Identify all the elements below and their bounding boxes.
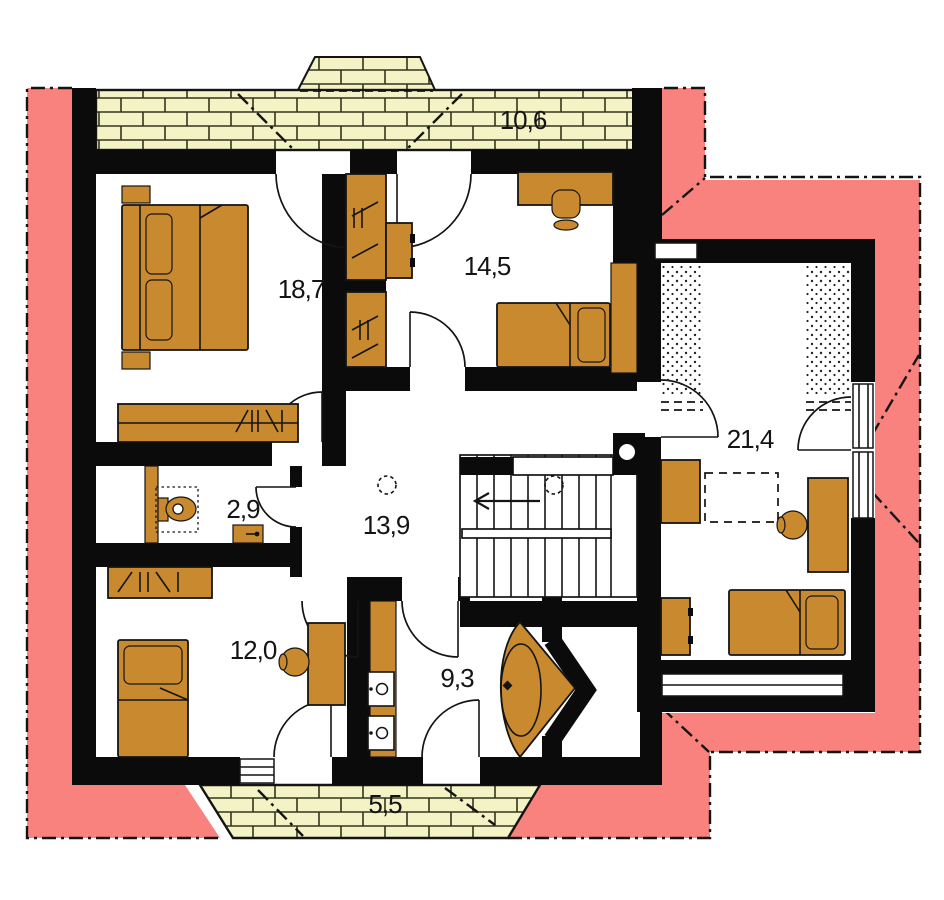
bed-lower <box>118 640 188 757</box>
stool-icon <box>552 190 580 218</box>
balcony-door-east-glazing <box>853 384 873 448</box>
washbasin-icon <box>368 672 394 706</box>
label-bedroom-upper: 14,5 <box>464 251 511 281</box>
window-bedroom-right-north <box>655 243 697 259</box>
wall-south-3 <box>480 757 662 785</box>
wall-south-2 <box>332 757 423 785</box>
staircase <box>460 433 645 597</box>
wall-master-south <box>72 442 272 466</box>
roof-left-band <box>27 88 72 838</box>
wall-master-east <box>322 174 346 466</box>
wall-upper-south-a <box>346 367 410 391</box>
wardrobe-divider-cap <box>346 280 386 292</box>
kneewall-zone-right <box>806 266 851 395</box>
bed-master <box>122 186 248 369</box>
floor-plan: 10,6 18,7 14,5 21,4 2,9 13,9 12,0 9,3 5,… <box>0 0 944 900</box>
wardrobe-right-b <box>661 598 693 655</box>
wardrobe-master <box>118 404 298 442</box>
roof-bottom-left <box>72 785 220 838</box>
stair-top-block <box>460 457 513 475</box>
chimney-flue-icon <box>619 444 635 460</box>
wall-wc-east-a <box>290 466 302 487</box>
wardrobe-right-a <box>661 460 700 523</box>
bed-right <box>729 590 845 655</box>
label-bedroom-master: 18,7 <box>278 274 325 304</box>
terrace-dormer-bump <box>298 57 435 90</box>
wall-west <box>72 88 96 785</box>
label-balcony: 5,5 <box>368 789 402 819</box>
label-wc: 2,9 <box>226 494 260 524</box>
window-south <box>240 759 274 783</box>
stair-landing-top <box>513 457 613 475</box>
terrace-deck <box>96 90 656 150</box>
label-bedroom-right: 21,4 <box>727 424 774 454</box>
label-terrace: 10,6 <box>500 105 547 135</box>
wall-north-1 <box>96 150 276 174</box>
wall-wc-south <box>72 543 302 567</box>
wall-bedroom-right-east-a <box>851 263 875 382</box>
label-bathroom: 9,3 <box>440 663 474 693</box>
wall-east-of-bedroom-upper <box>613 150 637 263</box>
wall-south-1 <box>72 757 240 785</box>
bed-upper <box>497 303 610 367</box>
washbasin-icon <box>368 716 394 750</box>
wall-north-2 <box>350 150 397 174</box>
wardrobe-upper-east <box>611 263 637 373</box>
floor-plan-drawing: 10,6 18,7 14,5 21,4 2,9 13,9 12,0 9,3 5,… <box>0 0 944 900</box>
dresser-upper <box>386 223 415 278</box>
wardrobe-lower <box>108 567 212 598</box>
kneewall-zone-left <box>661 266 703 395</box>
label-hall: 13,9 <box>363 510 410 540</box>
wall-bedroom-right-west-b <box>637 437 661 712</box>
wall-bedroom-right-west-a <box>637 263 661 382</box>
wall-wc-east-b <box>290 527 302 577</box>
stair-handrail <box>462 529 611 538</box>
roof-top-right-strip <box>660 88 705 180</box>
wc-sink-icon <box>233 525 263 543</box>
label-bedroom-lower: 12,0 <box>230 635 277 665</box>
window-bedroom-right-east <box>853 452 873 518</box>
